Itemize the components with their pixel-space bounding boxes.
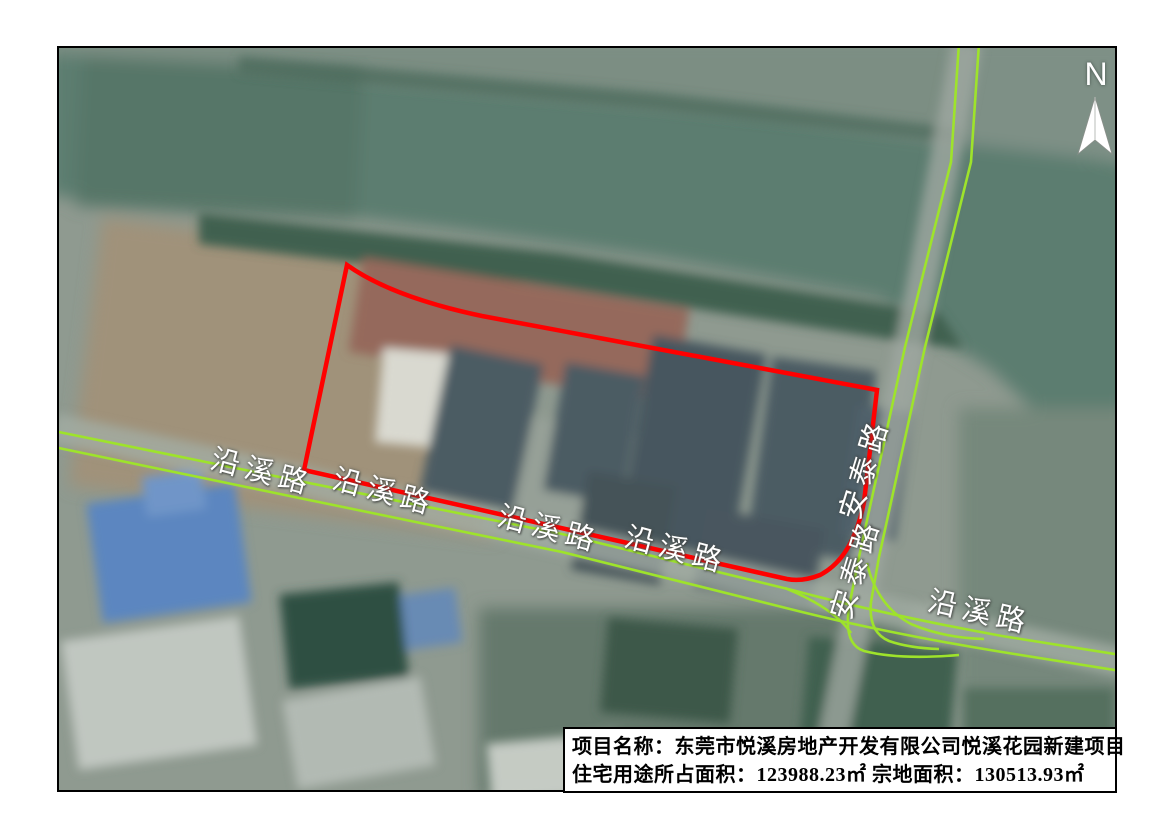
road-label: 沿溪路	[621, 514, 733, 582]
road-labels-layer: 沿溪路沿溪路沿溪路沿溪路沿溪路安泰路安泰路	[59, 48, 1115, 790]
satellite-map: 沿溪路沿溪路沿溪路沿溪路沿溪路安泰路安泰路 N	[57, 46, 1117, 792]
project-area-line: 住宅用途所占面积：123988.23㎡ 宗地面积：130513.93㎡	[572, 761, 1108, 789]
page: { "map": { "north": { "label": "N" }, "c…	[0, 0, 1170, 827]
road-label: 安泰路	[818, 511, 889, 624]
road-label: 沿溪路	[329, 456, 441, 524]
road-label: 沿溪路	[207, 436, 319, 504]
road-label: 安泰路	[827, 411, 898, 524]
road-label: 沿溪路	[924, 578, 1036, 643]
project-name-line: 项目名称：东莞市悦溪房地产开发有限公司悦溪花园新建项目	[572, 733, 1108, 761]
north-label: N	[1081, 56, 1111, 93]
project-info-box: 项目名称：东莞市悦溪房地产开发有限公司悦溪花园新建项目 住宅用途所占面积：123…	[563, 727, 1117, 793]
road-label: 沿溪路	[494, 493, 606, 561]
